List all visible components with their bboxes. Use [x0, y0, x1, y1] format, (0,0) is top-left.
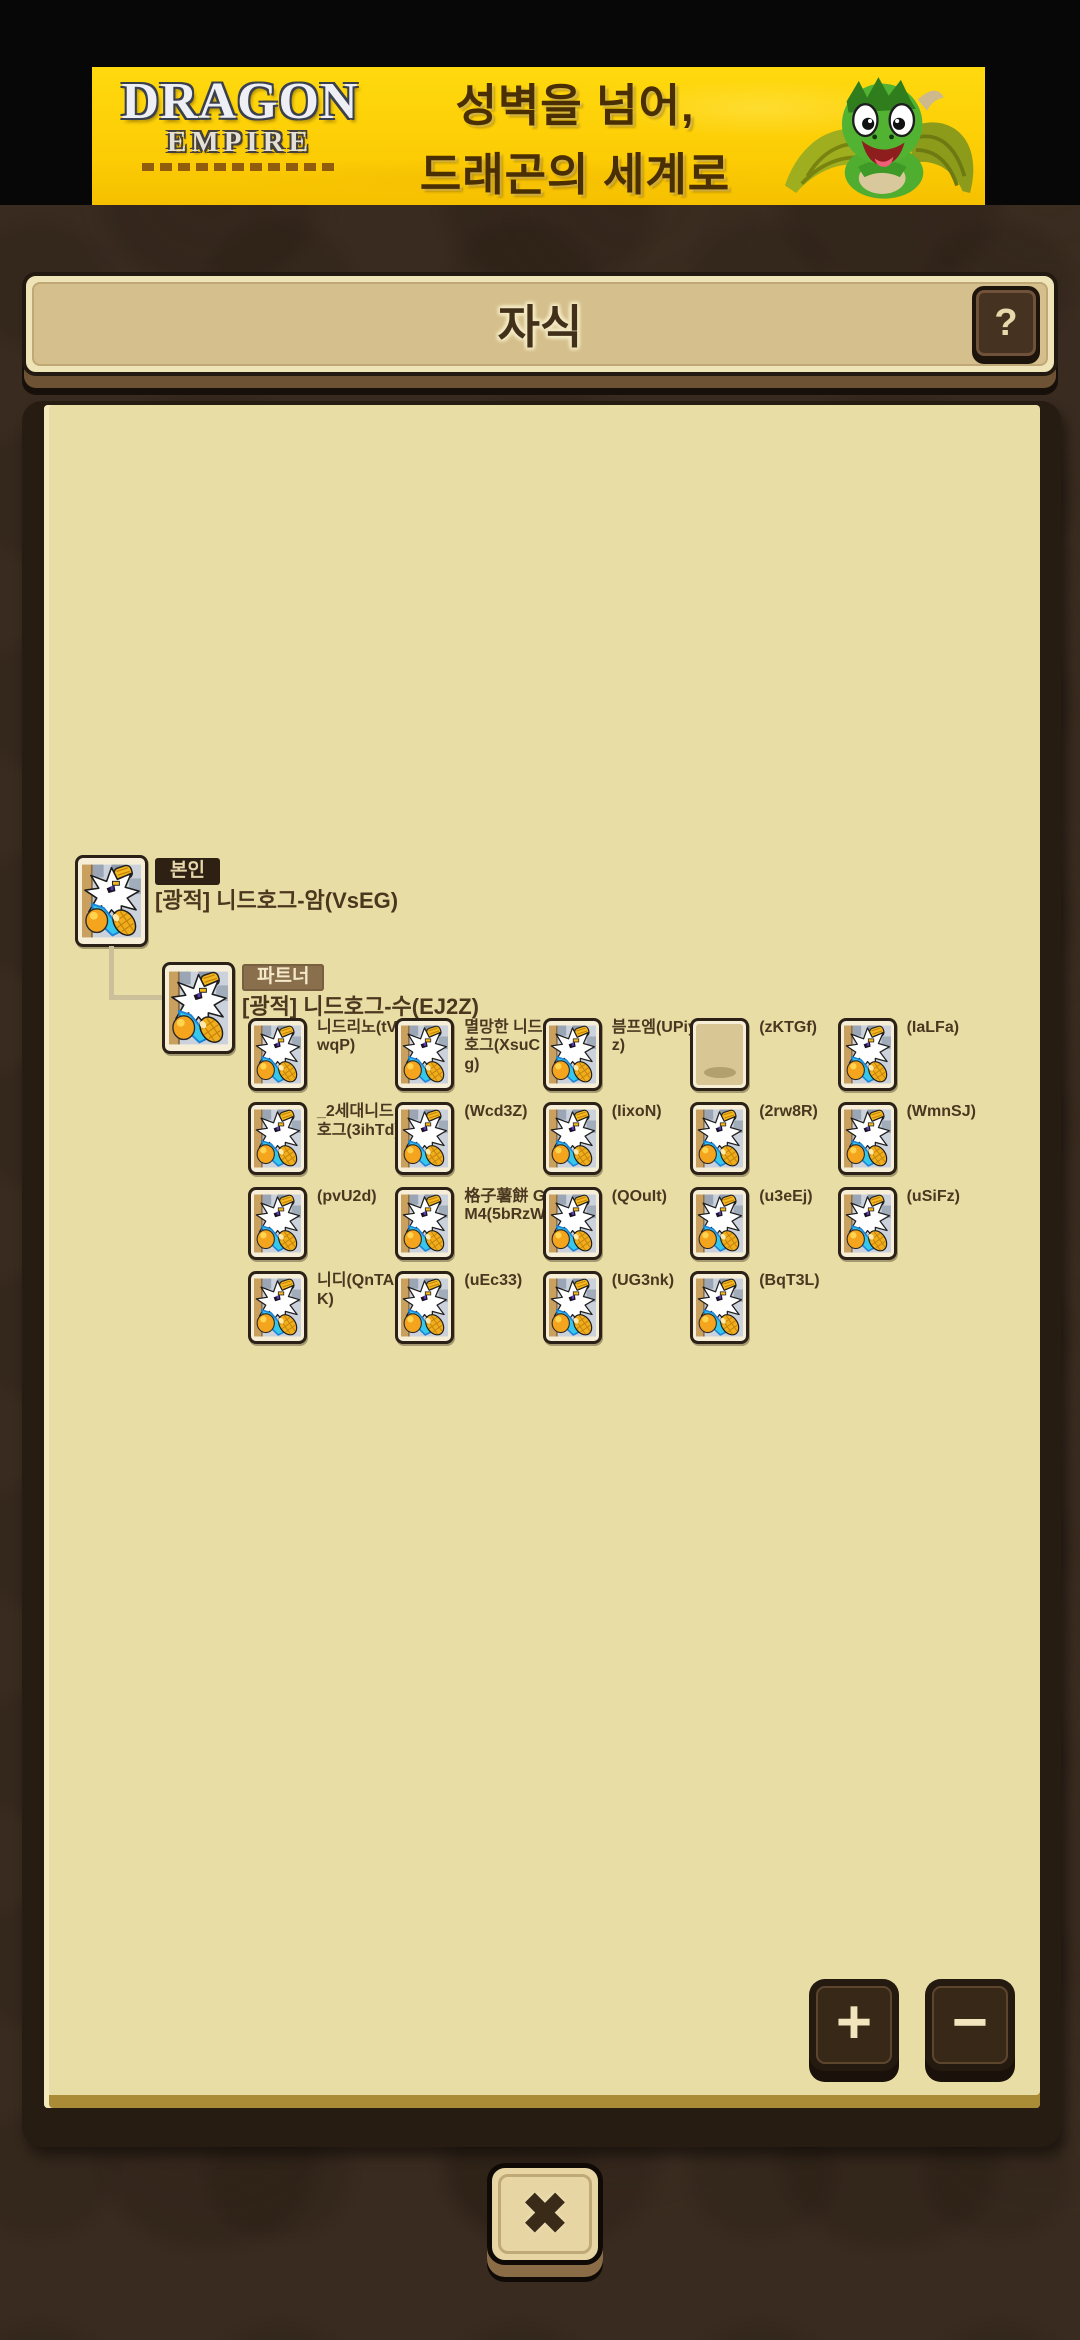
- child-dragon-card[interactable]: [690, 1018, 749, 1091]
- child-dragon-card[interactable]: [248, 1018, 307, 1091]
- child-name-label: (WmnSJ): [907, 1103, 997, 1121]
- child-name-label: (Wcd3Z): [464, 1103, 554, 1121]
- dragon-pixel-art-icon: [696, 1193, 743, 1254]
- child-dragon-card[interactable]: [838, 1018, 897, 1091]
- self-name-label: [광적] 니드호그-암(VsEG): [155, 883, 398, 915]
- dragon-pixel-art-icon: [254, 1108, 301, 1169]
- close-button[interactable]: ✖: [487, 2163, 603, 2265]
- child-dragon-card[interactable]: [248, 1102, 307, 1175]
- zoom-out-button[interactable]: −: [925, 1979, 1015, 2071]
- connector-horizontal-line: [109, 995, 163, 1000]
- child-name-label: (pvU2d): [317, 1188, 407, 1206]
- plus-icon: +: [836, 1992, 872, 2054]
- child-name-label: (QOuIt): [612, 1188, 702, 1206]
- dragon-pixel-art-icon: [844, 1108, 891, 1169]
- child-name-label: (uSiFz): [907, 1188, 997, 1206]
- child-dragon-card[interactable]: [690, 1187, 749, 1260]
- connector-vertical-line: [109, 946, 114, 1000]
- dragon-pixel-art-icon: [549, 1277, 596, 1338]
- child-name-label: 니드리노(tVwqP): [317, 1019, 407, 1056]
- child-dragon-card[interactable]: [248, 1271, 307, 1344]
- child-name-label: (UG3nk): [612, 1272, 702, 1290]
- self-badge: 본인: [155, 858, 220, 885]
- child-name-label: 멸망한 니드호그(XsuCg): [464, 1019, 554, 1074]
- child-dragon-card[interactable]: [395, 1102, 454, 1175]
- dragon-pixel-art-icon: [254, 1024, 301, 1085]
- screen: DRAGON EMPIRE 성벽을 넘어, 드래곤의 세계로: [0, 0, 1080, 2340]
- child-name-label: (IaLFa): [907, 1019, 997, 1037]
- family-tree: 본인 [광적] 니드호그-암(VsEG) 파트너 [광적] 니드호그-수(EJ2…: [0, 0, 1080, 2340]
- dragon-pixel-art-icon: [169, 969, 228, 1047]
- dragon-pixel-art-icon: [82, 862, 141, 940]
- zoom-in-button[interactable]: +: [809, 1979, 899, 2071]
- child-name-label: 니디(QnTAK): [317, 1272, 407, 1309]
- child-name-label: (BqT3L): [759, 1272, 849, 1290]
- dragon-pixel-art-icon: [844, 1024, 891, 1085]
- child-dragon-card[interactable]: [690, 1102, 749, 1175]
- dragon-pixel-art-icon: [549, 1108, 596, 1169]
- child-name-label: (zKTGf): [759, 1019, 849, 1037]
- child-dragon-card[interactable]: [543, 1187, 602, 1260]
- dragon-pixel-art-icon: [401, 1024, 448, 1085]
- dragon-pixel-art-icon: [254, 1193, 301, 1254]
- dragon-pixel-art-icon: [549, 1024, 596, 1085]
- dragon-pixel-art-icon: [401, 1108, 448, 1169]
- child-name-label: (IixoN): [612, 1103, 702, 1121]
- dragon-pixel-art-icon: [549, 1193, 596, 1254]
- dragon-pixel-art-icon: [401, 1193, 448, 1254]
- empty-card-face: [696, 1024, 743, 1085]
- child-dragon-card[interactable]: [543, 1271, 602, 1344]
- child-dragon-card[interactable]: [395, 1187, 454, 1260]
- close-icon: ✖: [522, 2186, 569, 2242]
- child-name-label: (u3eEj): [759, 1188, 849, 1206]
- child-dragon-card[interactable]: [543, 1018, 602, 1091]
- partner-dragon-card[interactable]: [162, 962, 235, 1054]
- partner-badge: 파트너: [242, 964, 324, 991]
- self-dragon-card[interactable]: [75, 855, 148, 947]
- child-name-label: 븜프엠(UPiyz): [612, 1019, 702, 1056]
- minus-icon: −: [952, 1992, 988, 2054]
- child-dragon-card[interactable]: [838, 1102, 897, 1175]
- dragon-pixel-art-icon: [696, 1277, 743, 1338]
- child-dragon-card[interactable]: [543, 1102, 602, 1175]
- child-name-label: 格子薯餅 G2M4(5bRzW): [464, 1188, 554, 1225]
- child-dragon-card[interactable]: [248, 1187, 307, 1260]
- dragon-pixel-art-icon: [401, 1277, 448, 1338]
- child-dragon-card[interactable]: [395, 1018, 454, 1091]
- child-name-label: (uEc33): [464, 1272, 554, 1290]
- child-name-label: (2rw8R): [759, 1103, 849, 1121]
- dragon-pixel-art-icon: [254, 1277, 301, 1338]
- dragon-pixel-art-icon: [844, 1193, 891, 1254]
- child-dragon-card[interactable]: [395, 1271, 454, 1344]
- dragon-pixel-art-icon: [696, 1108, 743, 1169]
- child-dragon-card[interactable]: [838, 1187, 897, 1260]
- child-name-label: _2세대니드호그(3ihTd): [317, 1103, 407, 1140]
- child-dragon-card[interactable]: [690, 1271, 749, 1344]
- partner-name-label: [광적] 니드호그-수(EJ2Z): [242, 989, 479, 1021]
